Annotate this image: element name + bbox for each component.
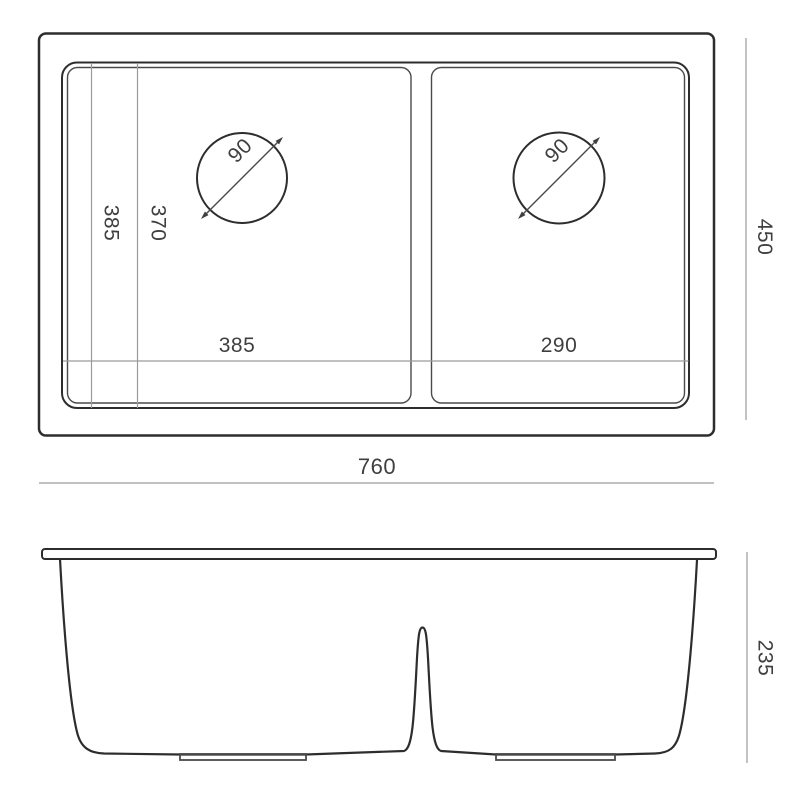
label-right-drain-diameter: 90 (540, 134, 573, 167)
label-overall-height: 235 (753, 640, 776, 677)
label-overall-width: 760 (358, 454, 396, 479)
label-left-bowl-width: 385 (219, 334, 256, 357)
body-outline (60, 559, 697, 755)
label-left-bowl-inner-length: 370 (146, 205, 169, 242)
sink-outer-edge (39, 34, 714, 436)
label-right-bowl-width: 290 (541, 334, 578, 357)
label-left-bowl-length: 385 (99, 205, 122, 242)
label-overall-depth: 450 (753, 219, 776, 256)
top-view: 90 90 385 370 385 290 450 760 (39, 34, 776, 484)
label-left-drain-diameter: 90 (223, 134, 256, 167)
front-view: 235 (42, 549, 776, 763)
drawing-svg: 90 90 385 370 385 290 450 760 235 (0, 0, 800, 794)
sink-technical-drawing: 90 90 385 370 385 290 450 760 235 (0, 0, 800, 794)
rim-slab (42, 549, 716, 559)
